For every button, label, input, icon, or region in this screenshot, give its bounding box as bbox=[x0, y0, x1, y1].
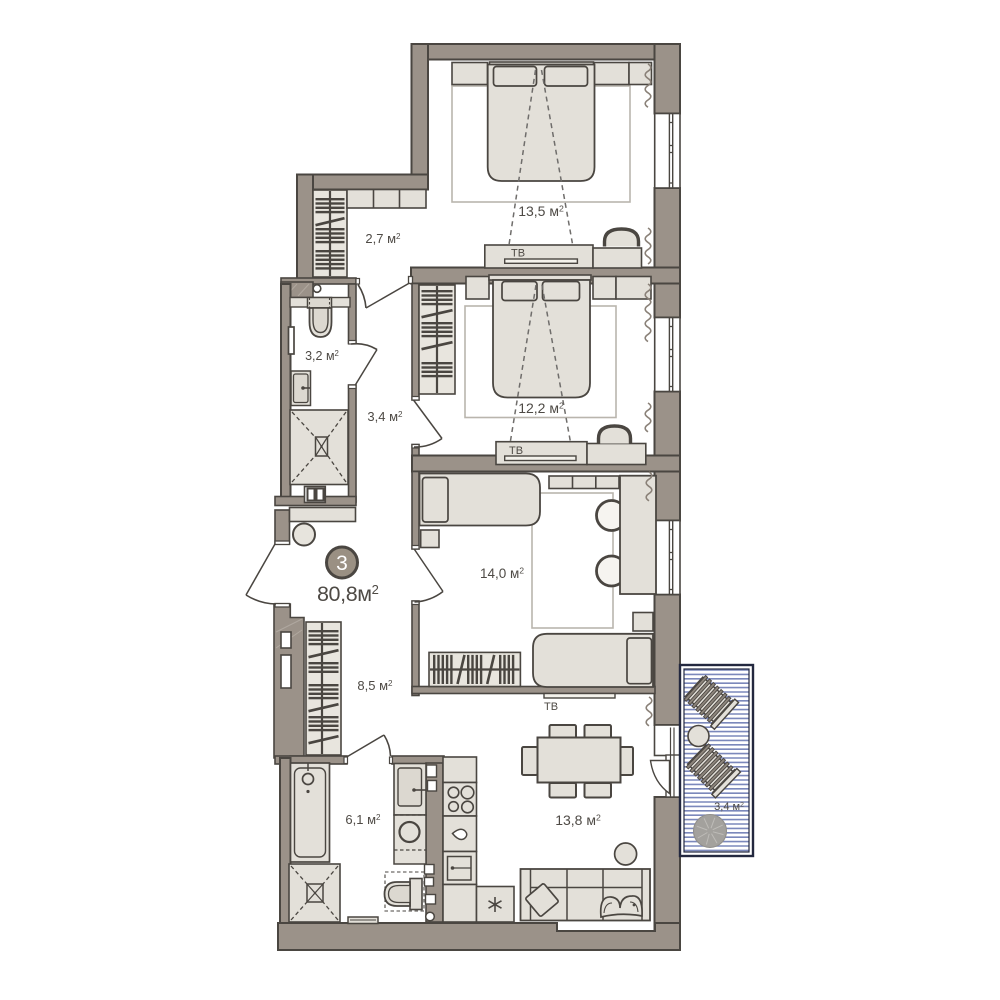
svg-text:ТВ: ТВ bbox=[509, 445, 523, 457]
svg-text:3,4 м2: 3,4 м2 bbox=[367, 409, 403, 424]
svg-text:ТВ: ТВ bbox=[544, 701, 558, 713]
svg-text:ТВ: ТВ bbox=[511, 248, 525, 260]
svg-text:6,1 м2: 6,1 м2 bbox=[345, 812, 381, 827]
svg-text:3,2 м2: 3,2 м2 bbox=[305, 349, 339, 363]
svg-text:2,7 м2: 2,7 м2 bbox=[365, 231, 401, 246]
svg-text:14,0 м2: 14,0 м2 bbox=[480, 566, 524, 581]
svg-text:3,4 м2: 3,4 м2 bbox=[714, 801, 744, 813]
svg-text:80,8м2: 80,8м2 bbox=[317, 582, 379, 606]
svg-text:8,5 м2: 8,5 м2 bbox=[357, 678, 393, 693]
svg-text:3: 3 bbox=[336, 552, 348, 575]
svg-text:13,5 м2: 13,5 м2 bbox=[518, 203, 564, 219]
svg-text:13,8 м2: 13,8 м2 bbox=[555, 812, 601, 828]
svg-text:12,2 м2: 12,2 м2 bbox=[518, 400, 564, 416]
